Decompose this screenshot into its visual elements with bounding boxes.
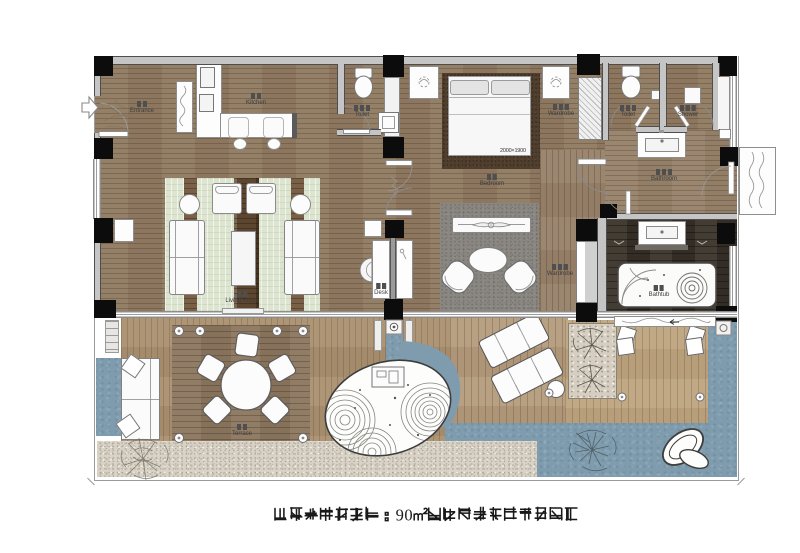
svg-text:0: 0 xyxy=(404,506,412,525)
svg-text:9: 9 xyxy=(396,506,404,525)
